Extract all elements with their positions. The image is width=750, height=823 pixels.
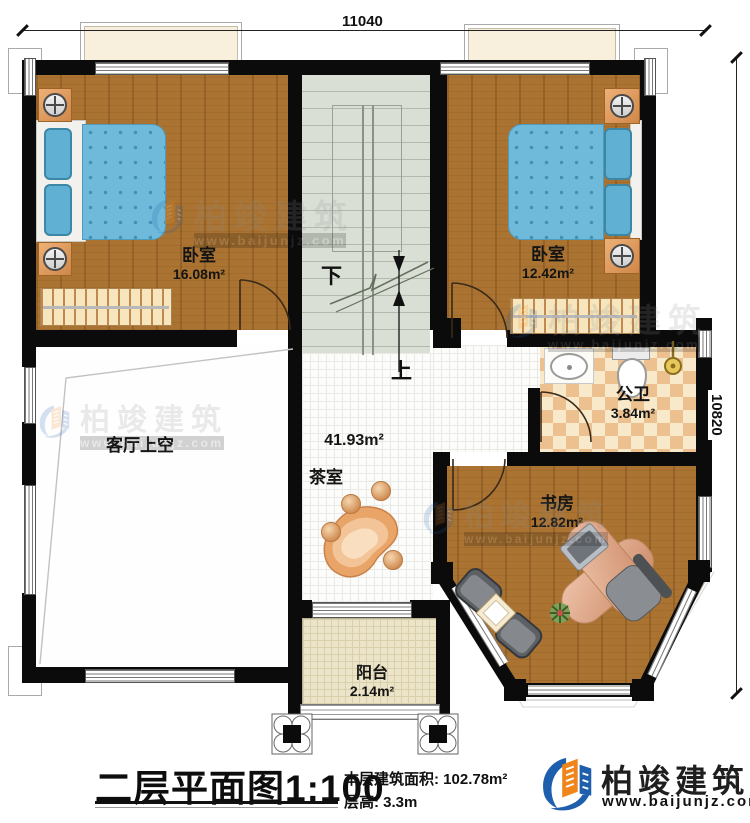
bay-window-sill — [468, 28, 616, 64]
tea-room-area: 41.93m² — [324, 432, 384, 450]
dimension-line-right — [736, 58, 737, 694]
window — [24, 485, 36, 595]
wall — [288, 360, 302, 618]
floor-height-line: 层高: 3.3m — [344, 791, 417, 812]
wall — [288, 618, 302, 716]
room-label-bedroom-right: 卧室 12.42m² — [522, 245, 574, 281]
wall — [22, 347, 36, 367]
brand-logo-icon — [502, 300, 542, 340]
bay-window-sill — [84, 26, 238, 64]
brand-logo-icon — [148, 196, 188, 236]
watermark-site: www.baijunjz.com — [194, 233, 346, 249]
brand-logo-icon — [420, 498, 458, 536]
room-area: 2.14m² — [350, 683, 394, 699]
nightstand — [38, 88, 72, 122]
watermark-name: 柏竣建筑 — [80, 406, 228, 436]
wall — [507, 452, 712, 466]
watermark: 柏竣建筑 www.baijunjz.com — [36, 402, 228, 440]
dimension-line-top — [22, 30, 706, 31]
room-name: 阳台 — [350, 665, 394, 683]
column — [272, 714, 312, 754]
nightstand — [604, 238, 640, 274]
room-area: 3.84m² — [611, 405, 655, 421]
floor-area-value: 102.78m² — [443, 771, 507, 788]
room-area: 12.42m² — [522, 265, 574, 281]
watermark: 柏竣建筑 www.baijunjz.com — [502, 300, 708, 340]
room-label-bathroom: 公卫 3.84m² — [611, 385, 655, 421]
window — [95, 62, 229, 75]
watermark-name: 柏竣建筑 — [548, 304, 708, 337]
sink — [550, 353, 588, 380]
lamp-icon — [43, 93, 67, 117]
wall — [430, 60, 447, 330]
room-name: 卧室 — [173, 246, 225, 266]
lamp-icon — [610, 244, 634, 268]
nightstand — [38, 242, 72, 276]
room-name: 公卫 — [611, 385, 655, 405]
pillow — [44, 184, 72, 236]
living-void-floor — [36, 345, 288, 667]
window — [24, 58, 36, 96]
wall — [22, 60, 36, 347]
floor-area-label: 本层建筑面积: — [344, 771, 439, 788]
wardrobe — [40, 288, 172, 326]
watermark-site: www.baijunjz.com — [80, 436, 224, 450]
wall — [528, 388, 540, 452]
brand-logo-icon — [537, 752, 599, 814]
pillow — [604, 184, 632, 236]
title-underline — [95, 801, 338, 804]
wall — [433, 318, 461, 348]
wall — [436, 618, 450, 716]
wall — [410, 600, 450, 618]
watermark-site: www.baijunjz.com — [548, 337, 700, 353]
brand-website: www.baijunjz.com — [602, 793, 750, 810]
watermark-site: www.baijunjz.com — [464, 532, 608, 546]
window — [85, 669, 235, 683]
floor-plan: 卧室 16.08m² 卧室 12.42m² 公卫 3.84m² 书房 12.82… — [0, 0, 750, 823]
pillow — [44, 128, 72, 180]
room-name: 茶室 — [309, 468, 343, 488]
hall-floor — [433, 345, 540, 452]
stair-rail — [362, 105, 374, 355]
room-name: 卧室 — [522, 245, 574, 265]
window — [440, 62, 590, 75]
window — [312, 602, 412, 618]
study-floor — [433, 452, 718, 702]
bed-mattress — [508, 124, 604, 240]
brand-logo-icon — [36, 402, 74, 440]
room-area: 16.08m² — [173, 266, 225, 282]
wall — [22, 330, 237, 347]
watermark-name: 柏竣建筑 — [194, 200, 354, 233]
room-label-balcony: 阳台 2.14m² — [350, 665, 394, 699]
window — [644, 58, 656, 96]
dimension-right-value: 10820 — [708, 390, 725, 440]
wall — [288, 600, 312, 618]
watermark: 柏竣建筑 www.baijunjz.com — [420, 498, 612, 536]
floor-area-line: 本层建筑面积: 102.78m² — [344, 768, 507, 789]
room-area: 41.93m² — [324, 432, 384, 450]
watermark-name: 柏竣建筑 — [464, 502, 612, 532]
lamp-icon — [43, 247, 67, 271]
floor-height-label: 层高: — [344, 794, 379, 811]
wall — [22, 422, 36, 485]
dimension-top-value: 11040 — [338, 13, 387, 30]
window — [24, 367, 36, 424]
column — [418, 714, 458, 754]
window — [698, 496, 712, 568]
wall — [433, 452, 450, 466]
balcony-railing — [300, 704, 440, 720]
floor-height-value: 3.3m — [383, 794, 417, 811]
watermark: 柏竣建筑 www.baijunjz.com — [148, 196, 354, 236]
stair-up-label: 上 — [391, 355, 412, 385]
pillow — [604, 128, 632, 180]
room-label-tea-room: 茶室 — [309, 468, 343, 488]
nightstand — [604, 88, 640, 124]
title-underline — [95, 807, 338, 808]
room-label-bedroom-left: 卧室 16.08m² — [173, 246, 225, 282]
lamp-icon — [610, 94, 634, 118]
stair-down-label: 下 — [321, 260, 342, 290]
